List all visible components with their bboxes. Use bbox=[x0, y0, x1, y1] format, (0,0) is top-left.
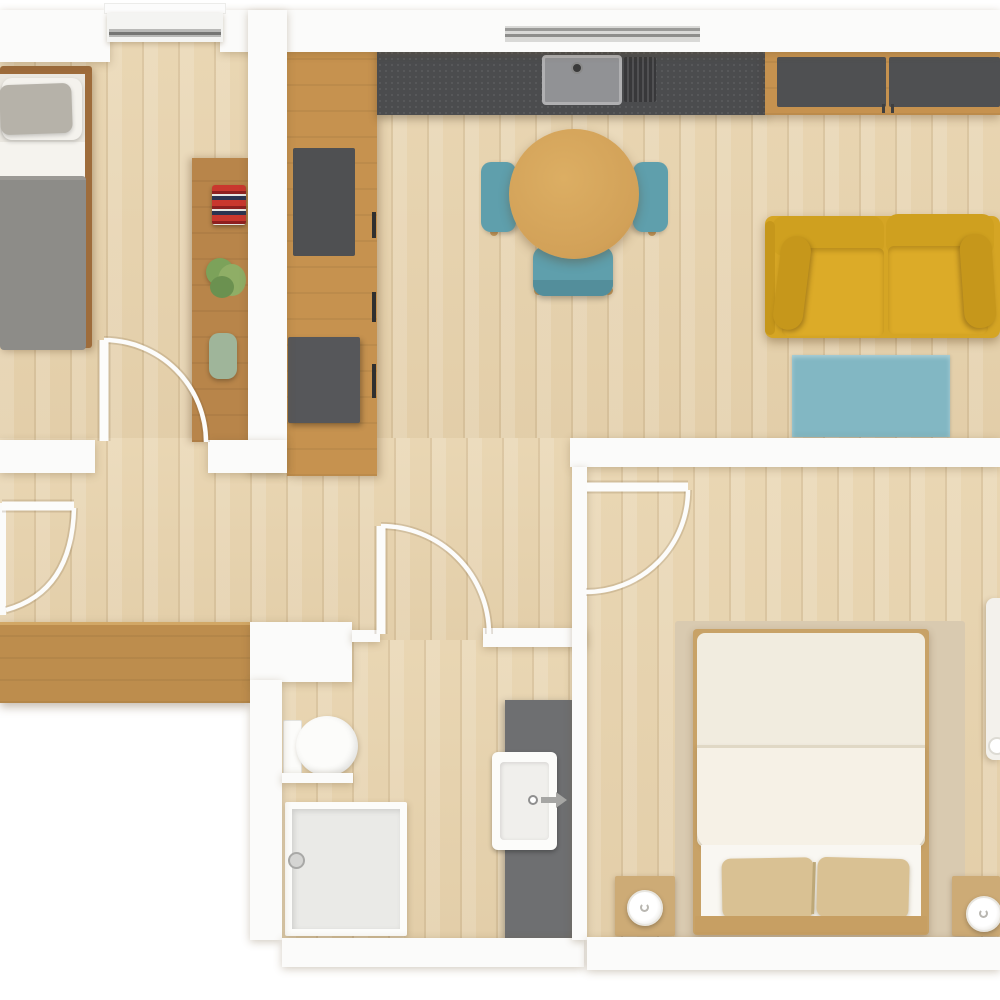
bedroom-1-window bbox=[107, 13, 223, 42]
wall-bedroom-2-left bbox=[572, 467, 587, 940]
sideboard-door-right bbox=[889, 57, 1000, 107]
wall-living-bedroom-2 bbox=[570, 438, 1000, 467]
wall-bathroom-top-block bbox=[250, 622, 352, 682]
toilet-bowl bbox=[296, 716, 358, 776]
kitchen-sink bbox=[542, 55, 622, 105]
green-vase bbox=[209, 333, 237, 379]
shower-head bbox=[288, 852, 305, 869]
sideboard-handle bbox=[882, 104, 885, 113]
potted-plant-leaves-2 bbox=[210, 276, 234, 298]
shower-tray bbox=[285, 802, 407, 936]
bedroom-1-window-track-line bbox=[109, 32, 221, 35]
bed-2-pillow-left bbox=[721, 857, 814, 919]
drainboard bbox=[624, 57, 656, 102]
wall-bedroom-1-bottom-left bbox=[0, 440, 95, 473]
sofa-armrest-right bbox=[959, 233, 997, 329]
wall-bedroom-1-right bbox=[248, 10, 287, 473]
wall-entry-jamb bbox=[0, 503, 6, 615]
wall-bathroom-bottom bbox=[282, 938, 584, 967]
kitchen-window-track-2 bbox=[505, 34, 700, 37]
lamp-left-mark bbox=[640, 903, 649, 912]
bed-1-sheet-fold bbox=[0, 142, 85, 176]
kitchen-faucet bbox=[571, 62, 583, 74]
sideboard-door-left bbox=[777, 57, 886, 107]
cabinet-handle-2 bbox=[372, 292, 376, 322]
lamp-right-mark bbox=[979, 909, 988, 918]
apartment-floor-plan bbox=[0, 0, 1000, 1000]
dining-table bbox=[509, 129, 639, 259]
wall-bedroom-2-bottom bbox=[587, 937, 1000, 970]
sideboard-handle bbox=[891, 104, 894, 113]
bed-2-headboard bbox=[695, 916, 927, 934]
wall-toilet-niche-stub bbox=[282, 773, 353, 783]
bed-2-duvet-fold bbox=[697, 745, 925, 850]
wall-bathroom-door-strip bbox=[352, 630, 380, 642]
bed-1-pillow-gray bbox=[0, 83, 73, 135]
bathroom-faucet-spout bbox=[556, 792, 567, 808]
kitchen-appliance-box bbox=[288, 337, 360, 423]
bathroom-faucet-arm bbox=[541, 797, 557, 803]
wall-top-bedroom-1 bbox=[0, 10, 110, 62]
bed-1-duvet bbox=[0, 176, 86, 350]
bathroom-faucet-dot bbox=[528, 795, 538, 805]
bed-2-pillow-right bbox=[816, 857, 910, 919]
hallway-console bbox=[0, 622, 250, 703]
wall-bedroom-1-bottom-right bbox=[208, 440, 287, 473]
cabinet-handle-1 bbox=[372, 212, 376, 238]
wardrobe bbox=[986, 598, 1000, 760]
cabinet-handle-3 bbox=[372, 364, 376, 398]
wardrobe-knob bbox=[988, 737, 1000, 755]
kitchen-window-track bbox=[505, 28, 700, 31]
wall-bathroom-left bbox=[250, 680, 282, 940]
folded-towels bbox=[212, 185, 246, 225]
dining-chair-bottom-back bbox=[533, 280, 613, 296]
kitchen-cabinet-panel bbox=[293, 148, 355, 256]
living-room-rug bbox=[792, 355, 950, 437]
